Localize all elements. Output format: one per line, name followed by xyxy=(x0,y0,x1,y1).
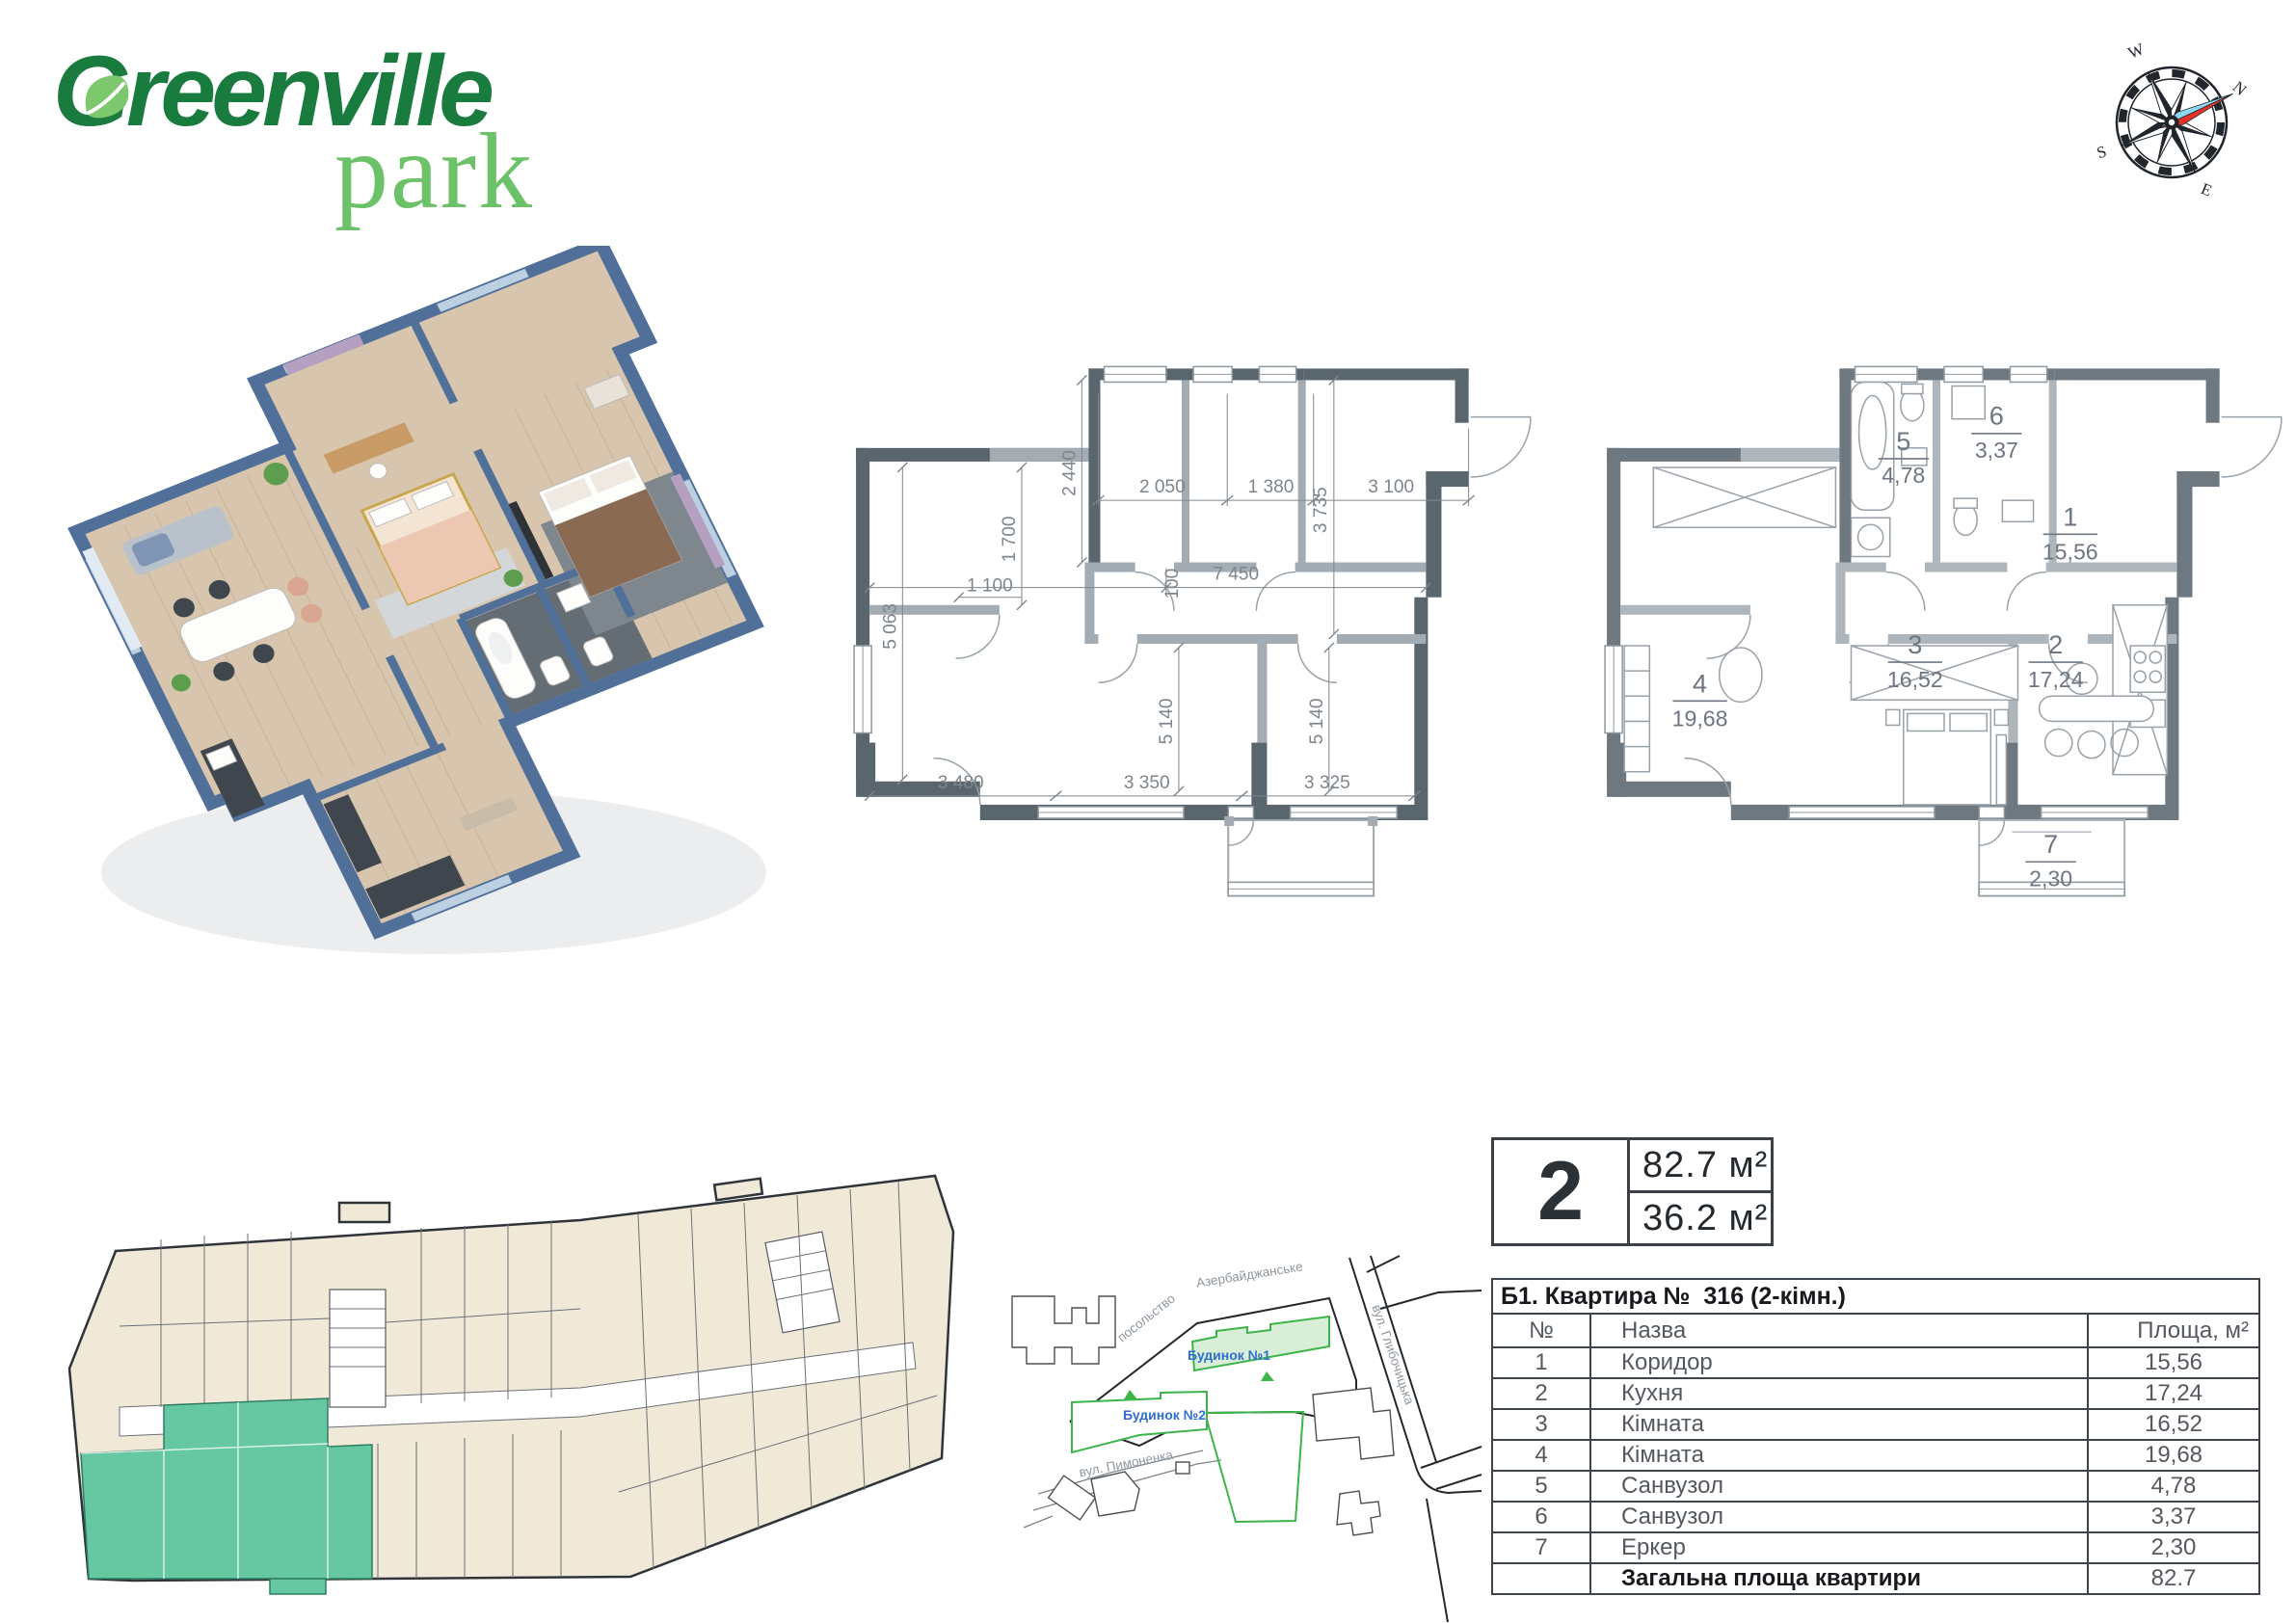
row-area: 15,56 xyxy=(2088,1347,2259,1378)
row-area: 4,78 xyxy=(2088,1471,2259,1502)
row-area: 16,52 xyxy=(2088,1409,2259,1440)
table-row: 3 Кімната 16,52 xyxy=(1492,1409,2259,1440)
plan-technical: 2 050 1 380 3 100 2 440 3 735 7 450 100 … xyxy=(844,355,1533,937)
table-row: 5 Санвузол 4,78 xyxy=(1492,1471,2259,1502)
dim-label: 5 140 xyxy=(1307,699,1327,745)
row-num: 1 xyxy=(1492,1347,1590,1378)
logo: Greenville park xyxy=(53,27,670,234)
total-label: Загальна площа квартири xyxy=(1590,1563,2088,1594)
table-title: Б1. Квартира № 316 (2-кімн.) xyxy=(1492,1279,2259,1314)
row-area: 19,68 xyxy=(2088,1440,2259,1471)
row-num: 5 xyxy=(1492,1471,1590,1502)
svg-text:16,52: 16,52 xyxy=(1887,667,1943,692)
dim-label: 2 440 xyxy=(1059,450,1080,496)
row-num: 3 xyxy=(1492,1409,1590,1440)
plan-3d-render xyxy=(48,246,819,1036)
total-value: 82.7 xyxy=(2088,1563,2259,1594)
svg-text:7: 7 xyxy=(2043,829,2058,859)
row-num: 4 xyxy=(1492,1440,1590,1471)
building2-label: Будинок №2 xyxy=(1123,1407,1206,1423)
row-area: 17,24 xyxy=(2088,1378,2259,1409)
site-roads xyxy=(1070,1256,1482,1622)
svg-text:3: 3 xyxy=(1908,629,1922,659)
dim-label: 3 735 xyxy=(1311,487,1331,533)
compass-label-w: W xyxy=(2125,40,2148,63)
row-name: Кухня xyxy=(1590,1378,2088,1409)
entrance-marker-icon xyxy=(1124,1390,1137,1399)
tech-dimensions: 2 050 1 380 3 100 2 440 3 735 7 450 100 … xyxy=(865,375,1475,800)
svg-text:17,24: 17,24 xyxy=(2028,667,2084,692)
unit-info-badge: 2 82.7 м² 36.2 м² xyxy=(1491,1137,1774,1246)
table-row: 7 Еркер 2,30 xyxy=(1492,1532,2259,1563)
rooms-count: 2 xyxy=(1494,1140,1630,1243)
street-label-azerbaijani: Азербайджанське xyxy=(1195,1259,1304,1290)
dim-label: 1 380 xyxy=(1248,477,1295,497)
logo-subtitle: park xyxy=(334,110,534,234)
table-row: 1 Коридор 15,56 xyxy=(1492,1347,2259,1378)
compass-label-n: N xyxy=(2229,78,2251,99)
col-name: Назва xyxy=(1590,1314,2088,1347)
table-row: 2 Кухня 17,24 xyxy=(1492,1378,2259,1409)
svg-text:4,78: 4,78 xyxy=(1882,463,1925,488)
compass-rose-icon: N W S E xyxy=(2080,29,2263,217)
svg-text:5: 5 xyxy=(1896,426,1910,456)
rooms-furniture xyxy=(1624,382,2165,804)
row-area: 3,37 xyxy=(2088,1502,2259,1532)
svg-text:1: 1 xyxy=(2063,501,2077,531)
site-plot-outline xyxy=(1205,1412,1303,1522)
dim-label: 2 050 xyxy=(1139,477,1186,497)
row-num: 2 xyxy=(1492,1378,1590,1409)
building1-label: Будинок №1 xyxy=(1188,1347,1270,1363)
row-name: Кімната xyxy=(1590,1409,2088,1440)
dim-label: 7 450 xyxy=(1213,565,1259,585)
row-name: Еркер xyxy=(1590,1532,2088,1563)
row-name: Санвузол xyxy=(1590,1502,2088,1532)
dim-label: 3 480 xyxy=(938,773,984,793)
leaf-icon xyxy=(80,73,132,121)
area-table: Б1. Квартира № 316 (2-кімн.) № Назва Пло… xyxy=(1491,1278,2260,1595)
total-row: Загальна площа квартири 82.7 xyxy=(1492,1563,2259,1594)
living-area: 36.2 м² xyxy=(1630,1190,1771,1243)
room-label: 72,30 xyxy=(2026,829,2076,891)
table-header-row: № Назва Площа, м² xyxy=(1492,1314,2259,1347)
dim-label: 3 100 xyxy=(1368,477,1414,497)
total-area: 82.7 м² xyxy=(1630,1140,1771,1190)
svg-text:2: 2 xyxy=(2048,629,2063,659)
compass-label-s: S xyxy=(2095,142,2109,162)
svg-text:15,56: 15,56 xyxy=(2042,539,2098,564)
brochure-sheet: Greenville park N W S E xyxy=(0,0,2296,1623)
col-area: Площа, м² xyxy=(2088,1314,2259,1347)
dim-label: 5 063 xyxy=(880,603,900,650)
tech-windows xyxy=(854,366,1397,818)
plan-rooms: 115,56 217,24 316,52 419,68 54,78 63,37 … xyxy=(1595,355,2283,937)
row-num: 7 xyxy=(1492,1532,1590,1563)
row-name: Коридор xyxy=(1590,1347,2088,1378)
table-row: 4 Кімната 19,68 xyxy=(1492,1440,2259,1471)
dim-label: 3 325 xyxy=(1304,773,1350,793)
table-row: 6 Санвузол 3,37 xyxy=(1492,1502,2259,1532)
svg-text:2,30: 2,30 xyxy=(2029,865,2072,891)
svg-text:3,37: 3,37 xyxy=(1975,438,2018,463)
site-map: Будинок №1 Будинок №2 посольство Азербай… xyxy=(995,1248,1484,1623)
entrance-marker-icon xyxy=(1261,1371,1274,1381)
dim-label: 100 xyxy=(1162,569,1183,599)
dim-label: 1 700 xyxy=(1000,516,1020,562)
svg-text:19,68: 19,68 xyxy=(1672,705,1728,731)
area-table-body: Б1. Квартира № 316 (2-кімн.) № Назва Пло… xyxy=(1492,1279,2259,1594)
dim-label: 1 100 xyxy=(967,576,1013,597)
dim-label: 5 140 xyxy=(1157,699,1177,745)
street-label-embassy: посольство xyxy=(1115,1291,1178,1345)
floor-overview-plan xyxy=(40,1164,956,1608)
row-name: Санвузол xyxy=(1590,1471,2088,1502)
tech-balcony xyxy=(1224,816,1377,895)
row-area: 2,30 xyxy=(2088,1532,2259,1563)
row-num: 6 xyxy=(1492,1502,1590,1532)
svg-text:6: 6 xyxy=(1989,401,2004,431)
street-label-hlybochytska: вул. Глибочицька xyxy=(1369,1303,1417,1407)
dim-label: 3 350 xyxy=(1124,773,1170,793)
col-num: № xyxy=(1492,1314,1590,1347)
row-name: Кімната xyxy=(1590,1440,2088,1471)
svg-text:4: 4 xyxy=(1693,668,1707,698)
compass-label-e: E xyxy=(2199,179,2215,200)
